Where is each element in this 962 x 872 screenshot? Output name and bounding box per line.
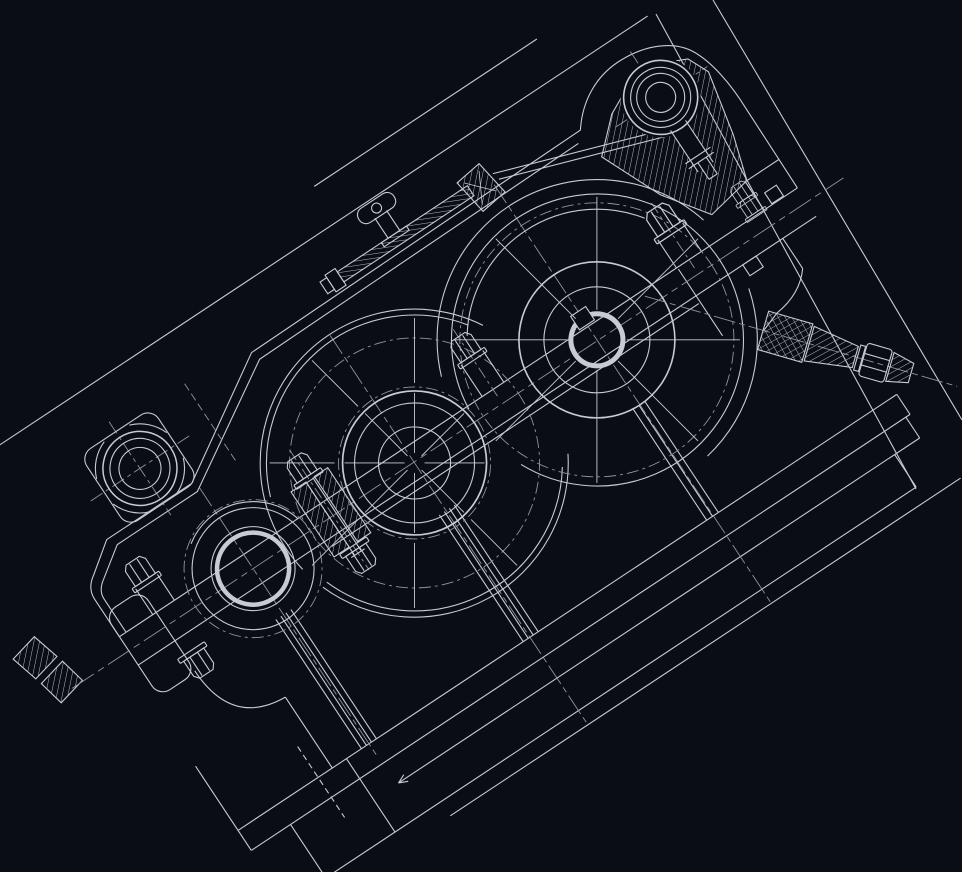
cad-viewport: [0, 0, 962, 872]
drawing-canvas: [0, 0, 962, 872]
